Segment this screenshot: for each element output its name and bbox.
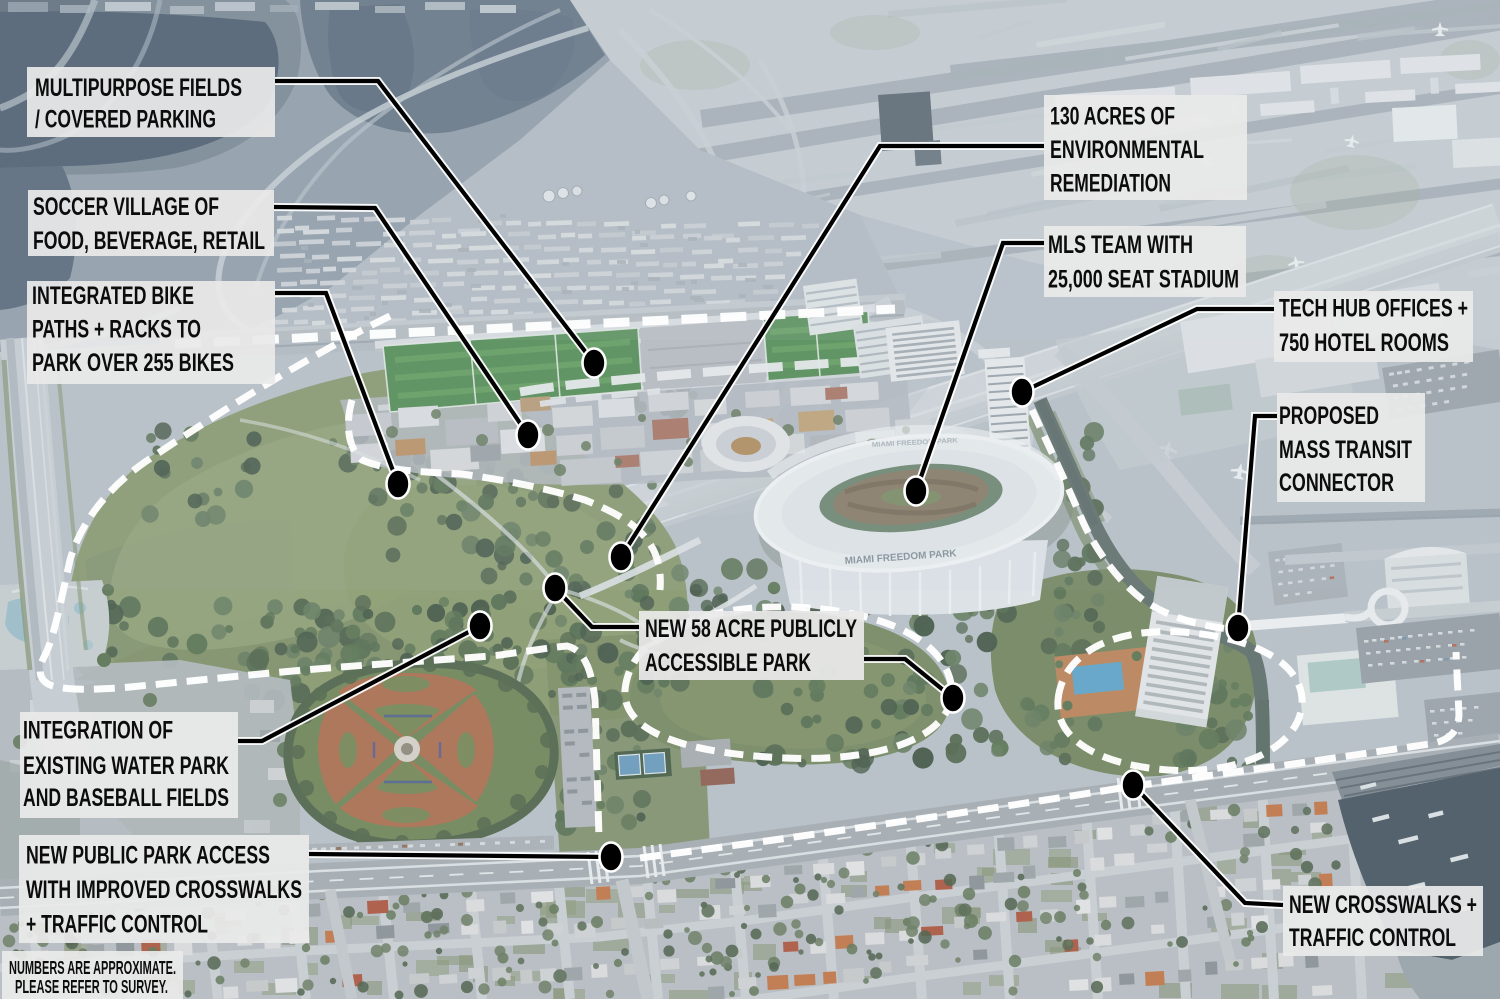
svg-text:AND BASEBALL FIELDS: AND BASEBALL FIELDS — [23, 784, 229, 812]
svg-text:ACCESSIBLE PARK: ACCESSIBLE PARK — [645, 649, 811, 677]
svg-text:REMEDIATION: REMEDIATION — [1050, 170, 1171, 198]
svg-text:/ COVERED PARKING: / COVERED PARKING — [35, 106, 216, 134]
svg-text:NEW PUBLIC PARK ACCESS: NEW PUBLIC PARK ACCESS — [26, 842, 270, 870]
svg-text:NUMBERS ARE APPROXIMATE.: NUMBERS ARE APPROXIMATE. — [9, 958, 176, 978]
svg-text:NEW CROSSWALKS +: NEW CROSSWALKS + — [1289, 891, 1477, 919]
svg-text:MLS TEAM WITH: MLS TEAM WITH — [1048, 231, 1193, 259]
svg-text:ENVIRONMENTAL: ENVIRONMENTAL — [1050, 136, 1204, 164]
svg-text:TRAFFIC CONTROL: TRAFFIC CONTROL — [1289, 924, 1456, 952]
svg-text:EXISTING WATER PARK: EXISTING WATER PARK — [23, 752, 229, 780]
svg-text:INTEGRATED BIKE: INTEGRATED BIKE — [32, 282, 194, 310]
svg-text:WITH IMPROVED CROSSWALKS: WITH IMPROVED CROSSWALKS — [26, 876, 302, 904]
svg-text:SOCCER VILLAGE OF: SOCCER VILLAGE OF — [33, 193, 219, 221]
svg-text:PROPOSED: PROPOSED — [1279, 402, 1379, 430]
svg-text:FOOD, BEVERAGE, RETAIL: FOOD, BEVERAGE, RETAIL — [33, 227, 265, 255]
svg-text:130 ACRES OF: 130 ACRES OF — [1050, 103, 1175, 131]
svg-text:NEW 58 ACRE PUBLICLY: NEW 58 ACRE PUBLICLY — [645, 615, 857, 643]
svg-text:MULTIPURPOSE FIELDS: MULTIPURPOSE FIELDS — [35, 74, 242, 102]
svg-text:PARK OVER 255 BIKES: PARK OVER 255 BIKES — [32, 349, 234, 377]
svg-text:25,000 SEAT STADIUM: 25,000 SEAT STADIUM — [1048, 266, 1239, 294]
svg-text:PATHS + RACKS TO: PATHS + RACKS TO — [32, 316, 201, 344]
svg-text:INTEGRATION OF: INTEGRATION OF — [23, 717, 173, 745]
svg-text:TECH HUB OFFICES +: TECH HUB OFFICES + — [1279, 295, 1468, 323]
svg-text:750 HOTEL ROOMS: 750 HOTEL ROOMS — [1279, 329, 1449, 357]
svg-text:CONNECTOR: CONNECTOR — [1279, 469, 1394, 497]
svg-text:MASS TRANSIT: MASS TRANSIT — [1279, 436, 1412, 464]
svg-text:+ TRAFFIC CONTROL: + TRAFFIC CONTROL — [26, 911, 208, 939]
svg-text:PLEASE REFER TO SURVEY.: PLEASE REFER TO SURVEY. — [15, 977, 168, 997]
